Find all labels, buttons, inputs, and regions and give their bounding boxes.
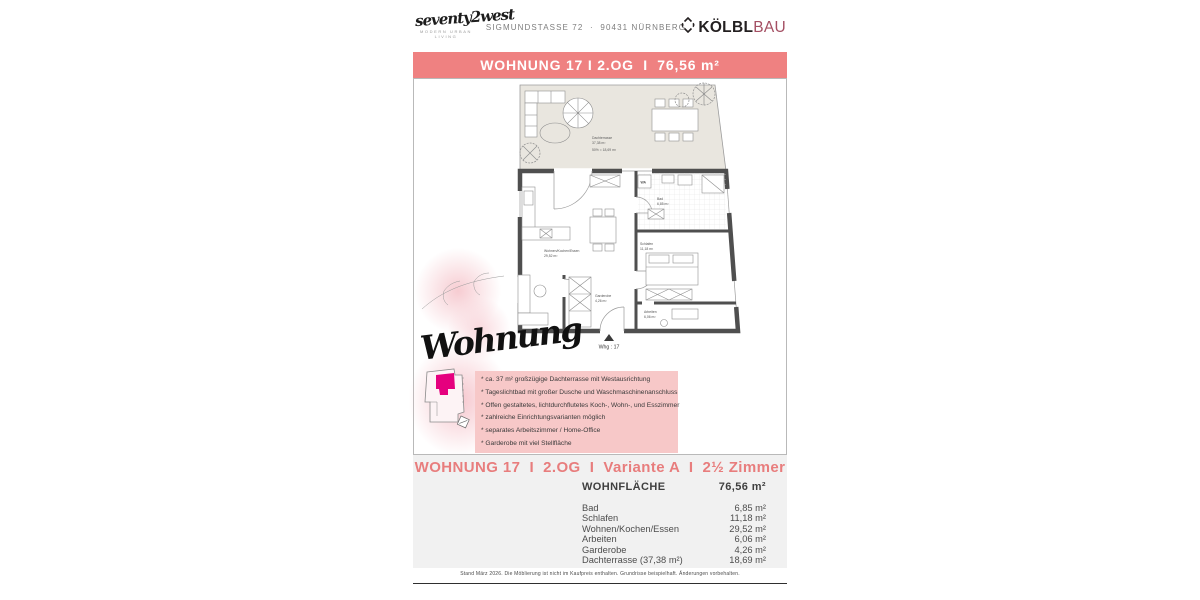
mini-site-plan: [417, 366, 475, 437]
table-row: Garderobe 4,26 m²: [582, 545, 766, 555]
room-label: Bad: [582, 503, 599, 513]
branch-decoration: [422, 273, 504, 309]
room-value: 29,52 m²: [729, 524, 766, 534]
living-area-value: 76,56 m²: [719, 481, 766, 493]
room-label: Wohnen/Kochen/Essen: [582, 524, 679, 534]
variant-title: WOHNUNG 17 I 2.OG I Variante A I 2½ Zimm…: [413, 455, 787, 476]
bottom-rule: [413, 583, 787, 584]
project-address: SIGMUNDSTASSE 72 · 90431 NÜRNBERG: [486, 23, 686, 32]
feature-item: * zahlreiche Einrichtungsvarianten mögli…: [481, 412, 672, 425]
table-row: Dachterrasse (37,38 m²) 18,69 m²: [582, 555, 766, 565]
feature-item: * Offen gestaltetes, lichtdurchflutetes …: [481, 400, 672, 413]
living-area-row: WOHNFLÄCHE 76,56 m²: [582, 481, 766, 493]
koelblbau-icon: [681, 17, 695, 38]
floor-plan-area: Dachterrasse 37,38 m² 50% = 18,69 m²: [413, 78, 787, 455]
room-size-table: Bad 6,85 m² Schlafen 11,18 m² Wohnen/Koc…: [582, 503, 766, 565]
room-value: 18,69 m²: [729, 555, 766, 565]
svg-text:29,52 m²: 29,52 m²: [544, 254, 558, 258]
table-row: Arbeiten 6,06 m²: [582, 534, 766, 544]
svg-text:Arbeiten: Arbeiten: [644, 310, 657, 314]
room-value: 11,18 m²: [730, 513, 766, 523]
north-triangle-icon: [604, 334, 614, 341]
unit-marker-label: Whg : 17: [599, 345, 620, 351]
feature-item: * ca. 37 m² großzügige Dachterrasse mit …: [481, 374, 672, 387]
living-area-label: WOHNFLÄCHE: [582, 481, 665, 493]
bedroom-furniture: [646, 253, 698, 300]
svg-text:Schlafen: Schlafen: [640, 242, 653, 246]
svg-text:11,18 m²: 11,18 m²: [640, 247, 654, 251]
room-label: Garderobe: [582, 545, 626, 555]
feature-item: * separates Arbeitszimmer / Home-Office: [481, 425, 672, 438]
disclaimer-text: Stand März 2026. Die Möblierung ist nich…: [413, 571, 787, 577]
room-value: 6,06 m²: [734, 534, 766, 544]
table-row: Schlafen 11,18 m²: [582, 513, 766, 523]
apartment-title-bar: WOHNUNG 17 I 2.OG I 76,56 m²: [413, 52, 787, 78]
koelblbau-logo: KÖLBLBAU: [681, 17, 786, 38]
feature-list: * ca. 37 m² großzügige Dachterrasse mit …: [475, 371, 678, 453]
svg-text:Dachterrasse: Dachterrasse: [592, 136, 612, 140]
svg-text:Bad: Bad: [657, 197, 663, 201]
brand-logo: seventy2west MODERN URBAN LIVING: [415, 10, 477, 39]
table-row: Wohnen/Kochen/Essen 29,52 m²: [582, 524, 766, 534]
header: seventy2west MODERN URBAN LIVING SIGMUND…: [413, 4, 787, 48]
feature-item: * Garderobe mit viel Stellfläche: [481, 438, 672, 451]
svg-text:Garderobe: Garderobe: [595, 294, 611, 298]
svg-text:6,06 m²: 6,06 m²: [644, 315, 656, 319]
details-section: WOHNUNG 17 I 2.OG I Variante A I 2½ Zimm…: [413, 455, 787, 568]
room-value: 4,26 m²: [734, 545, 766, 555]
brand-script-text: seventy2west: [414, 8, 477, 30]
svg-text:4,26 m²: 4,26 m²: [595, 299, 607, 303]
logo-text-light: BAU: [753, 19, 786, 36]
svg-text:50% = 18,69 m²: 50% = 18,69 m²: [592, 148, 617, 152]
table-row: Bad 6,85 m²: [582, 503, 766, 513]
unit-marker: Whg : 17: [599, 334, 620, 351]
flyer-page: seventy2west MODERN URBAN LIVING SIGMUND…: [413, 0, 787, 600]
room-value: 6,85 m²: [734, 503, 766, 513]
room-label: Dachterrasse (37,38 m²): [582, 555, 683, 565]
room-label: Arbeiten: [582, 534, 617, 544]
brand-tagline: MODERN URBAN LIVING: [415, 29, 477, 39]
svg-text:37,38 m²: 37,38 m²: [592, 141, 606, 145]
feature-item: * Tageslichtbad mit großer Dusche und Wa…: [481, 387, 672, 400]
svg-text:6,85 m²: 6,85 m²: [657, 202, 669, 206]
logo-text: KÖLBLBAU: [698, 19, 786, 37]
compass-icon: [457, 416, 469, 428]
room-label: Schlafen: [582, 513, 618, 523]
logo-text-bold: KÖLBL: [698, 19, 753, 36]
svg-text:Wohnen/Kochen/Essen: Wohnen/Kochen/Essen: [544, 249, 579, 253]
svg-text:WA: WA: [641, 181, 647, 185]
